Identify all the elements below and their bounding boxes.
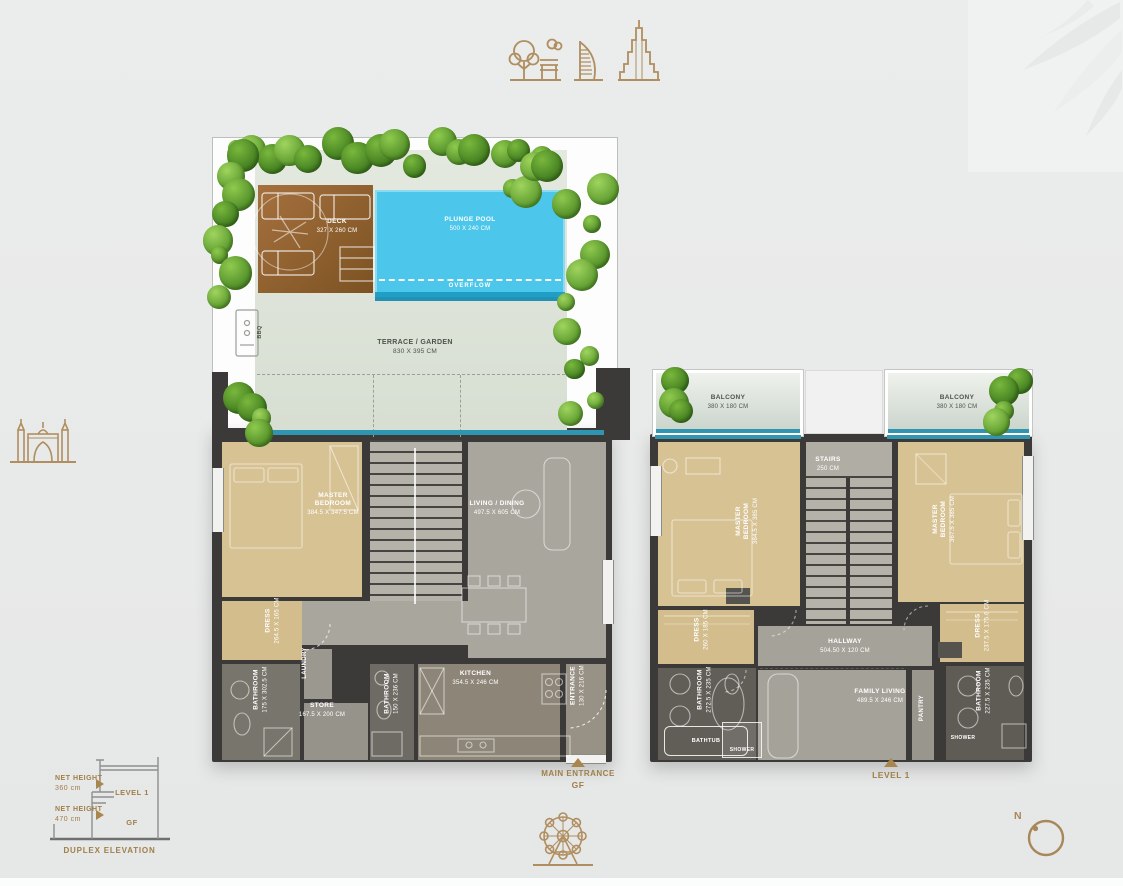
gf-entrance-label: ENTRANCE 130 x 216 cm <box>570 644 585 728</box>
deck-label: DECK 327 x 260 cm <box>305 218 369 235</box>
park-icon <box>508 36 564 84</box>
elevation-arrow-gf <box>96 810 104 820</box>
balcony-glass <box>888 429 1029 433</box>
level1-floor-tag: LEVEL 1 <box>851 770 931 780</box>
palm-watermark <box>968 0 1123 172</box>
room-dims: 175 x 302.5 cm <box>262 648 270 732</box>
room-dims: 250 cm <box>792 465 864 473</box>
gf-master-bedroom-label: MASTER BEDROOM 384.5 x 347.5 cm <box>296 492 370 517</box>
gf-dress-label: DRESS 264.5 x 165 cm <box>265 584 280 658</box>
room-name: MASTER BEDROOM <box>932 491 948 547</box>
elevation-gf-name: GF <box>112 818 152 827</box>
room-name: LIVING / DINING <box>469 500 524 507</box>
duplex-elevation-sketch <box>42 752 177 847</box>
l1-master-left-label: MASTER BEDROOM 384.5 x 385 cm <box>735 479 759 563</box>
room-name: STAIRS <box>815 456 840 463</box>
garden-furniture <box>212 137 618 440</box>
l1-stairs-label: STAIRS 250 cm <box>792 456 864 473</box>
room-name: ENTRANCE <box>570 666 577 705</box>
pool-label: PLUNGE POOL 500 x 240 cm <box>425 216 515 233</box>
room-dims: 489.5 x 246 cm <box>828 697 932 705</box>
room-dims: 380 x 180 cm <box>688 403 768 411</box>
room-dims: 264.5 x 165 cm <box>274 584 282 658</box>
l1-shower-left: SHOWER <box>722 722 762 758</box>
room-name: BALCONY <box>940 394 975 401</box>
room-dims: 272.5 x 235 cm <box>706 650 714 730</box>
burj-khalifa-icon <box>616 18 662 84</box>
room-name: BATHROOM <box>976 670 983 711</box>
room-dims: 130 x 216 cm <box>579 644 587 728</box>
ferris-wheel-icon <box>531 808 595 870</box>
l1-family-living-label: FAMILY LIVING 489.5 x 246 cm <box>828 688 932 705</box>
l1-dress-right-label: DRESS 237.5 x 175.6 cm <box>975 593 990 659</box>
bbq-label: BBQ <box>256 317 268 347</box>
pool-name: PLUNGE POOL <box>444 216 495 223</box>
l1-bathroom-right-label: BATHROOM 227.5 x 235 cm <box>976 651 991 731</box>
l1-balcony-right-label: BALCONY 380 x 180 cm <box>917 394 997 411</box>
room-dims: 384.5 x 385 cm <box>752 479 760 563</box>
deck-dims: 327 x 260 cm <box>305 227 369 235</box>
room-dims: 167.5 x 200 cm <box>290 711 354 719</box>
l1-bathroom-left-label: BATHROOM 272.5 x 235 cm <box>697 650 712 730</box>
elevation-caption: DUPLEX ELEVATION <box>42 846 177 855</box>
floorplan-sheet: DECK 327 x 260 cm PLUNGE POOL 500 x 240 … <box>0 0 1123 886</box>
room-name: DRESS <box>694 617 701 641</box>
room-dims: 227.5 x 235 cm <box>985 651 993 731</box>
gf-living-dining-label: LIVING / DINING 497.5 x 605 cm <box>452 500 542 517</box>
room-name: HALLWAY <box>828 638 862 645</box>
terrace-name: TERRACE / GARDEN <box>377 339 453 346</box>
room-dims: 380 x 180 cm <box>917 403 997 411</box>
room-dims: 497.5 x 605 cm <box>452 509 542 517</box>
room-name: BATHROOM <box>253 669 260 710</box>
room-name: MASTER BEDROOM <box>735 493 751 549</box>
gf-bathroom-1-label: BATHROOM 175 x 302.5 cm <box>253 648 268 732</box>
gf-floor-tag: GF <box>528 780 628 790</box>
main-entrance-label: MAIN ENTRANCE <box>528 769 628 778</box>
room-name: STORE <box>310 702 334 709</box>
room-name: BATHROOM <box>697 669 704 710</box>
l1-shower-right-label: SHOWER <box>938 734 988 742</box>
main-entrance-arrow <box>571 758 585 767</box>
l1-balcony-gap-panel <box>805 370 883 434</box>
pool-overflow-label: OVERFLOW <box>430 282 510 290</box>
room-name: MASTER BEDROOM <box>305 492 361 508</box>
mosque-icon <box>10 416 76 466</box>
room-name: DRESS <box>265 608 272 632</box>
l1-balcony-left-label: BALCONY 380 x 180 cm <box>688 394 768 411</box>
room-dims: 150 x 236 cm <box>393 654 401 734</box>
room-name: BALCONY <box>711 394 746 401</box>
room-dims: 354.5 x 246 cm <box>428 679 523 687</box>
terrace-label: TERRACE / GARDEN 830 x 395 cm <box>355 339 475 356</box>
elevation-arrow-l1 <box>96 779 104 789</box>
room-name: DRESS <box>975 613 982 637</box>
gf-laundry-label: LAUNDRY <box>301 638 311 688</box>
terrace-dims: 830 x 395 cm <box>355 348 475 356</box>
l1-pantry-label: PANTRY <box>918 681 928 735</box>
bottom-strip <box>0 878 1123 886</box>
compass-north-label: N <box>1014 810 1022 822</box>
room-dims: 504.50 x 120 cm <box>795 647 895 655</box>
l1-master-right-label: MASTER BEDROOM 367.5 x 385 cm <box>932 477 956 561</box>
room-dims: 367.5 x 385 cm <box>949 477 957 561</box>
room-dims: 384.5 x 347.5 cm <box>296 509 370 517</box>
shower-left-label: SHOWER <box>719 746 765 754</box>
l1-hallway-label: HALLWAY 504.50 x 120 cm <box>795 638 895 655</box>
gf-kitchen-label: KITCHEN 354.5 x 246 cm <box>428 670 523 687</box>
compass-icon <box>1026 818 1066 858</box>
level1-arrow <box>884 758 898 767</box>
burj-al-arab-icon <box>572 38 606 84</box>
deck-name: DECK <box>327 218 347 225</box>
room-name: BATHROOM <box>384 673 391 714</box>
pool-dims: 500 x 240 cm <box>425 225 515 233</box>
gf-store-label: STORE 167.5 x 200 cm <box>290 702 354 719</box>
elevation-level1-name: LEVEL 1 <box>112 788 152 797</box>
room-name: KITCHEN <box>460 670 491 677</box>
room-name: FAMILY LIVING <box>854 688 905 695</box>
balcony-glass <box>656 429 800 433</box>
room-dims: 237.5 x 175.6 cm <box>984 593 992 659</box>
gf-bathroom-2-label: BATHROOM 150 x 236 cm <box>384 654 399 734</box>
